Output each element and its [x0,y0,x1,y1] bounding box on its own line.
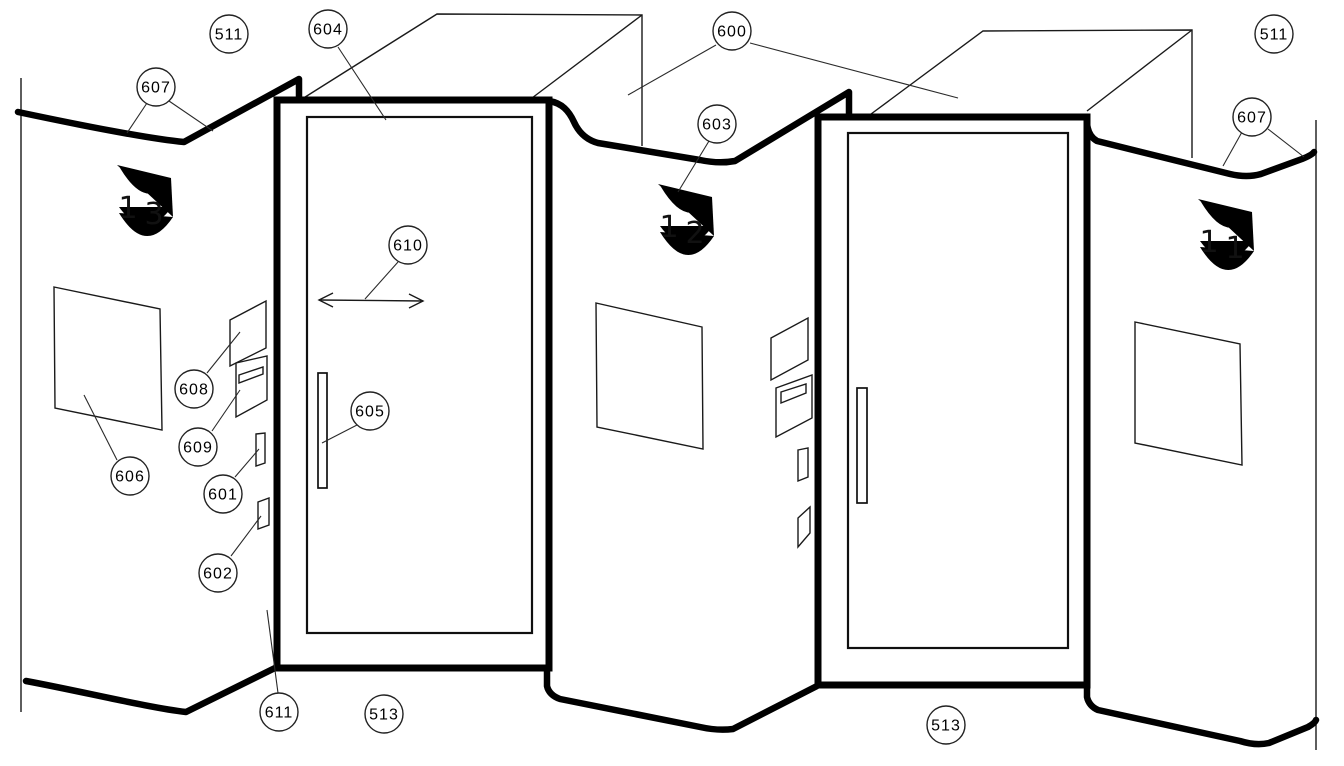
ref-bubble-513-left: 513 [365,695,403,733]
ref-bubble-609: 609 [179,428,217,466]
ref-label: 607 [141,80,171,97]
ref-bubble-511-right: 511 [1255,15,1293,53]
hall-lantern-middle: 1 2 [658,184,714,255]
ref-bubble-607-left: 607 [137,68,175,106]
leader-607-right-b [1268,129,1304,157]
ref-label: 606 [115,469,145,486]
right-wall-top-edge [1087,118,1314,176]
right-door-handle [857,388,867,503]
left-door-panel [307,117,532,633]
lantern-digit: 1 [1225,231,1244,266]
right-door [818,117,1087,685]
ref-label: 610 [393,238,423,255]
ref-bubble-511-left: 511 [210,15,248,53]
ref-bubble-607-right: 607 [1233,98,1271,136]
door-slide-arrow-icon [319,293,423,308]
ref-label: 511 [1260,27,1289,44]
left-door [277,100,549,668]
leader-600-a [628,45,716,95]
ref-bubble-605: 605 [351,392,389,430]
right-shaft-box-diagonal [1087,30,1192,111]
left-button-plate-upper [256,433,265,466]
ref-bubble-604: 604 [309,10,347,48]
ref-label: 607 [1237,110,1267,127]
left-shaft-box-outline [302,14,642,146]
ref-label: 605 [355,404,385,421]
lantern-digit: 1 [659,210,678,245]
ref-label: 511 [215,27,244,44]
wall-edges [18,79,1316,744]
right-door-panel [848,133,1068,648]
ref-label: 609 [183,440,213,457]
middle-display-panel [771,318,808,380]
ref-label: 513 [931,718,961,735]
middle-button-plate-upper [798,448,808,481]
right-shaft-box-outline [867,30,1192,158]
lantern-digit: 3 [144,197,163,232]
left-door-handle [318,373,327,488]
ref-bubble-608: 608 [175,370,213,408]
ref-bubble-611: 611 [260,693,298,731]
hall-lantern-right: 1 1 [1198,199,1254,270]
middle-sign-panel [596,303,703,449]
ref-bubble-606: 606 [111,457,149,495]
ref-label: 604 [313,22,343,39]
middle-wall-fixtures [596,303,812,547]
leader-607-left-a [127,103,147,133]
ref-bubble-602: 602 [199,554,237,592]
patent-figure: 1 3 1 2 1 1 511 604 600 [0,0,1344,766]
ref-bubble-610: 610 [389,226,427,264]
leader-606 [84,395,117,460]
left-slot-panel [236,356,267,417]
leader-602 [231,516,261,556]
lantern-digit: 1 [118,191,137,226]
middle-button-plate-lower [798,507,810,547]
left-shaft-box-diagonal [532,15,642,98]
leader-607-left-b [169,101,213,131]
leader-608 [207,332,240,373]
leader-607-right-a [1223,132,1242,166]
leader-604 [338,47,386,120]
ref-label: 608 [179,382,209,399]
left-display-panel [230,301,266,366]
leader-603 [678,141,709,192]
leader-600-b [750,43,958,98]
ref-label: 600 [717,24,747,41]
left-sign-panel [54,287,162,430]
right-wall-bottom-edge [1087,684,1316,744]
left-wall-bottom-edge [26,667,277,712]
arrow-shaft [319,300,423,301]
hall-lantern-left: 1 3 [117,165,173,236]
middle-wall-bottom-edge [547,668,817,730]
ref-bubble-601: 601 [204,475,242,513]
ref-bubble-513-right: 513 [927,706,965,744]
right-wall-fixtures [1135,322,1242,465]
ref-bubble-603: 603 [698,105,736,143]
ref-label: 601 [208,487,238,504]
ref-label: 611 [265,705,294,722]
lantern-digit: 2 [685,216,704,251]
ref-label: 602 [203,566,233,583]
left-button-plate-lower [258,498,269,529]
lantern-digit: 1 [1199,225,1218,260]
ref-bubble-600: 600 [713,12,751,50]
line-drawing: 1 3 1 2 1 1 511 604 600 [0,0,1344,766]
ref-label: 513 [369,707,399,724]
left-slot-opening [239,367,263,383]
leader-610 [365,262,398,299]
middle-slot-opening [781,384,806,403]
ref-label: 603 [702,117,732,134]
right-sign-panel [1135,322,1242,465]
